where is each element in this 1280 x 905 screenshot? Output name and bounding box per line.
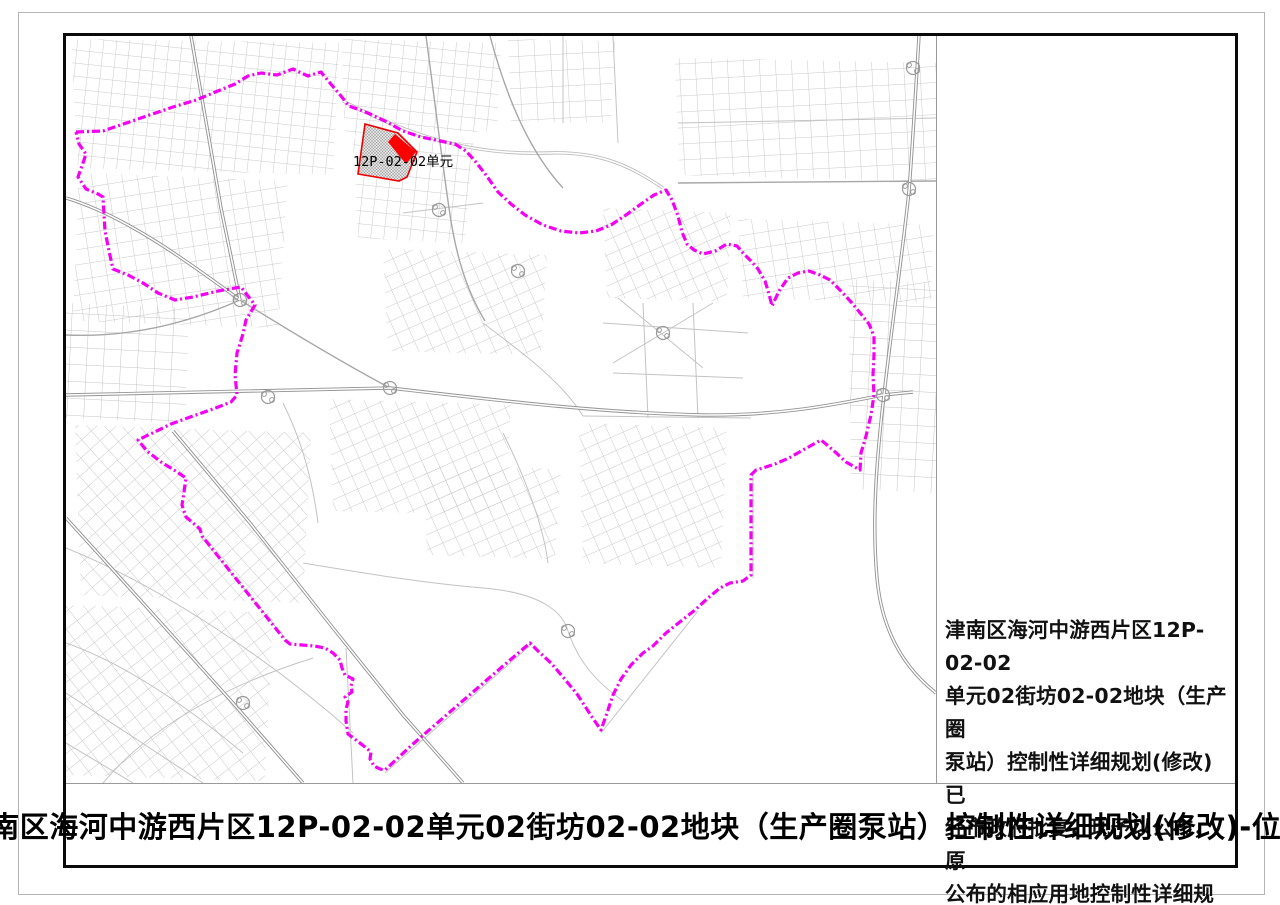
announcement-line: 公布的相应用地控制性详细规划 xyxy=(945,878,1233,905)
announcement-panel: 津南区海河中游西片区12P-02-02单元02街坊02-02地块（生产圈泵站）控… xyxy=(937,36,1235,783)
announcement-line: 津南区海河中游西片区12P-02-02 xyxy=(945,614,1233,680)
plot-label: 12P-02-02单元 xyxy=(353,154,453,170)
map-title: 津南区海河中游西片区12P-02-02单元02街坊02-02地块（生产圈泵站）控… xyxy=(0,804,1280,846)
location-map: 12P-02-02单元 xyxy=(66,36,936,783)
map-frame: 12P-02-02单元 津南区海河中游西片区12P-02-02单元02街坊02-… xyxy=(63,33,1238,868)
map-area: 12P-02-02单元 xyxy=(66,36,937,783)
page: 12P-02-02单元 津南区海河中游西片区12P-02-02单元02街坊02-… xyxy=(0,0,1280,905)
announcement-line: 单元02街坊02-02地块（生产圈 xyxy=(945,680,1233,746)
title-bar: 津南区海河中游西片区12P-02-02单元02街坊02-02地块（生产圈泵站）控… xyxy=(66,783,1235,866)
